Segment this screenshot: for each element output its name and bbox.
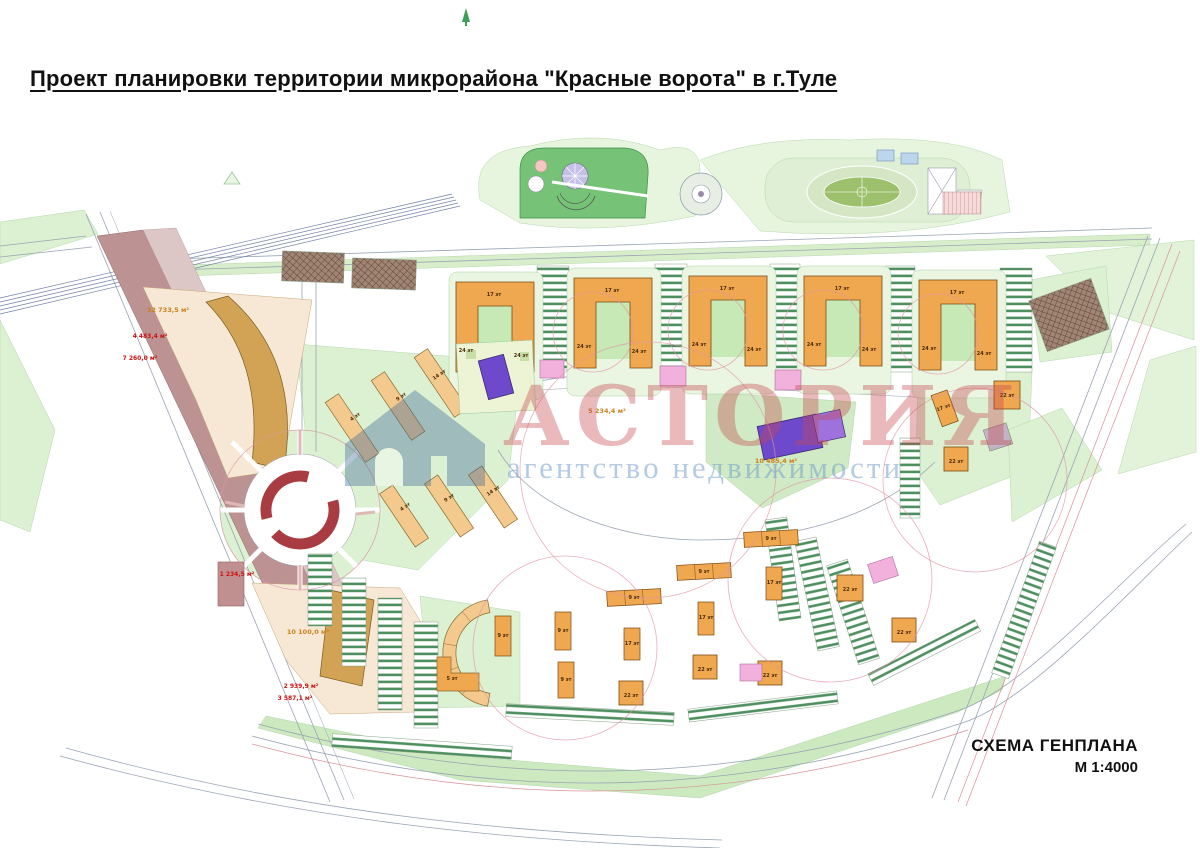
legend-block: СХЕМА ГЕНПЛАНА М 1:4000	[971, 736, 1138, 776]
pool	[877, 150, 894, 161]
map-label: 24 эт	[807, 342, 822, 348]
substation	[775, 370, 801, 390]
pool	[901, 153, 918, 164]
map-label: 17 эт	[699, 615, 714, 621]
page-title: Проект планировки территории микрорайона…	[30, 66, 837, 92]
parking-garage	[351, 258, 416, 290]
substation	[660, 366, 686, 386]
scheme-label: СХЕМА ГЕНПЛАНА	[971, 736, 1138, 756]
map-label: 22 эт	[763, 673, 778, 679]
map-label: 17 эт	[835, 286, 850, 292]
map-label: 5 234,4 м²	[588, 407, 626, 415]
map-label: 22 эт	[949, 459, 964, 465]
north-mark	[462, 8, 470, 26]
map-label: 22 эт	[698, 667, 713, 673]
map-label: 9 эт	[698, 569, 709, 575]
map-label: 17 эт	[605, 288, 620, 294]
substation	[868, 556, 899, 583]
map-label: 24 эт	[747, 347, 762, 353]
map-label: 24 эт	[459, 348, 474, 354]
map-label: 2 939,9 м²	[284, 683, 319, 690]
map-label: 24 эт	[862, 347, 877, 353]
substation	[740, 664, 762, 681]
map-label: 3 587,1 м²	[278, 695, 313, 702]
map-label: 24 эт	[577, 344, 592, 350]
map-label: 17 эт	[720, 286, 735, 292]
map-label: 24 эт	[632, 349, 647, 355]
parking-garage	[281, 251, 344, 283]
map-label: 24 эт	[977, 351, 992, 357]
map-label: 9 эт	[560, 677, 571, 683]
map-label: 22 эт	[624, 693, 639, 699]
map-label: 22 эт	[1000, 393, 1015, 399]
map-label: 9 эт	[765, 536, 776, 542]
map-label: 9 эт	[628, 595, 639, 601]
map-label: 5 эт	[446, 676, 457, 682]
scale-label: М 1:4000	[971, 759, 1138, 776]
mauve-building	[218, 562, 244, 606]
map-label: 17 эт	[950, 290, 965, 296]
map-label: 17 эт	[625, 641, 640, 647]
map-label: 10 485,4 м²	[755, 457, 797, 465]
genplan-map: 17 эт24 эт24 эт17 эт24 эт24 эт17 эт24 эт…	[0, 0, 1200, 848]
map-label: 10 100,0 м²	[287, 628, 329, 636]
map-label: 22 эт	[897, 630, 912, 636]
map-label: 17 эт	[767, 580, 782, 586]
map-label: 1 234,5 м²	[220, 571, 255, 578]
map-label: 22 эт	[843, 587, 858, 593]
map-label: 9 эт	[497, 633, 508, 639]
stands	[943, 192, 981, 214]
map-label: 4 483,4 м²	[133, 333, 168, 340]
map-label: 32 733,5 м²	[147, 306, 189, 314]
map-label: 24 эт	[514, 353, 529, 359]
triangle-mark	[224, 172, 240, 184]
map-label: 7 260,0 м²	[123, 355, 158, 362]
substation	[540, 360, 564, 378]
map-label: 9 эт	[557, 628, 568, 634]
map-label: 17 эт	[487, 292, 502, 298]
map-label: 24 эт	[692, 342, 707, 348]
map-label: 24 эт	[922, 346, 937, 352]
